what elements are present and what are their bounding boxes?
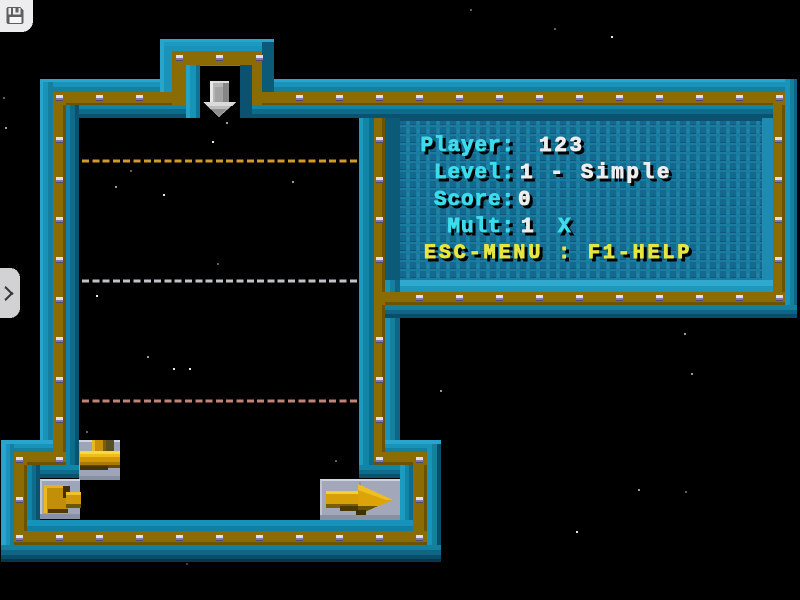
- svg-text:1: 1: [521, 216, 535, 239]
- svg-text:ESC-MENU : F1-HELP: ESC-MENU : F1-HELP: [424, 242, 692, 265]
- svg-text:X: X: [558, 216, 572, 239]
- svg-text:1 - Simple: 1 - Simple: [520, 162, 672, 185]
- svg-text:Level:: Level:: [434, 162, 515, 185]
- svg-text:Player:: Player:: [420, 135, 515, 158]
- svg-text:Mult:: Mult:: [447, 216, 515, 239]
- svg-text:Score:: Score:: [434, 189, 515, 212]
- svg-text:123: 123: [539, 135, 585, 158]
- svg-text:0: 0: [518, 189, 532, 212]
